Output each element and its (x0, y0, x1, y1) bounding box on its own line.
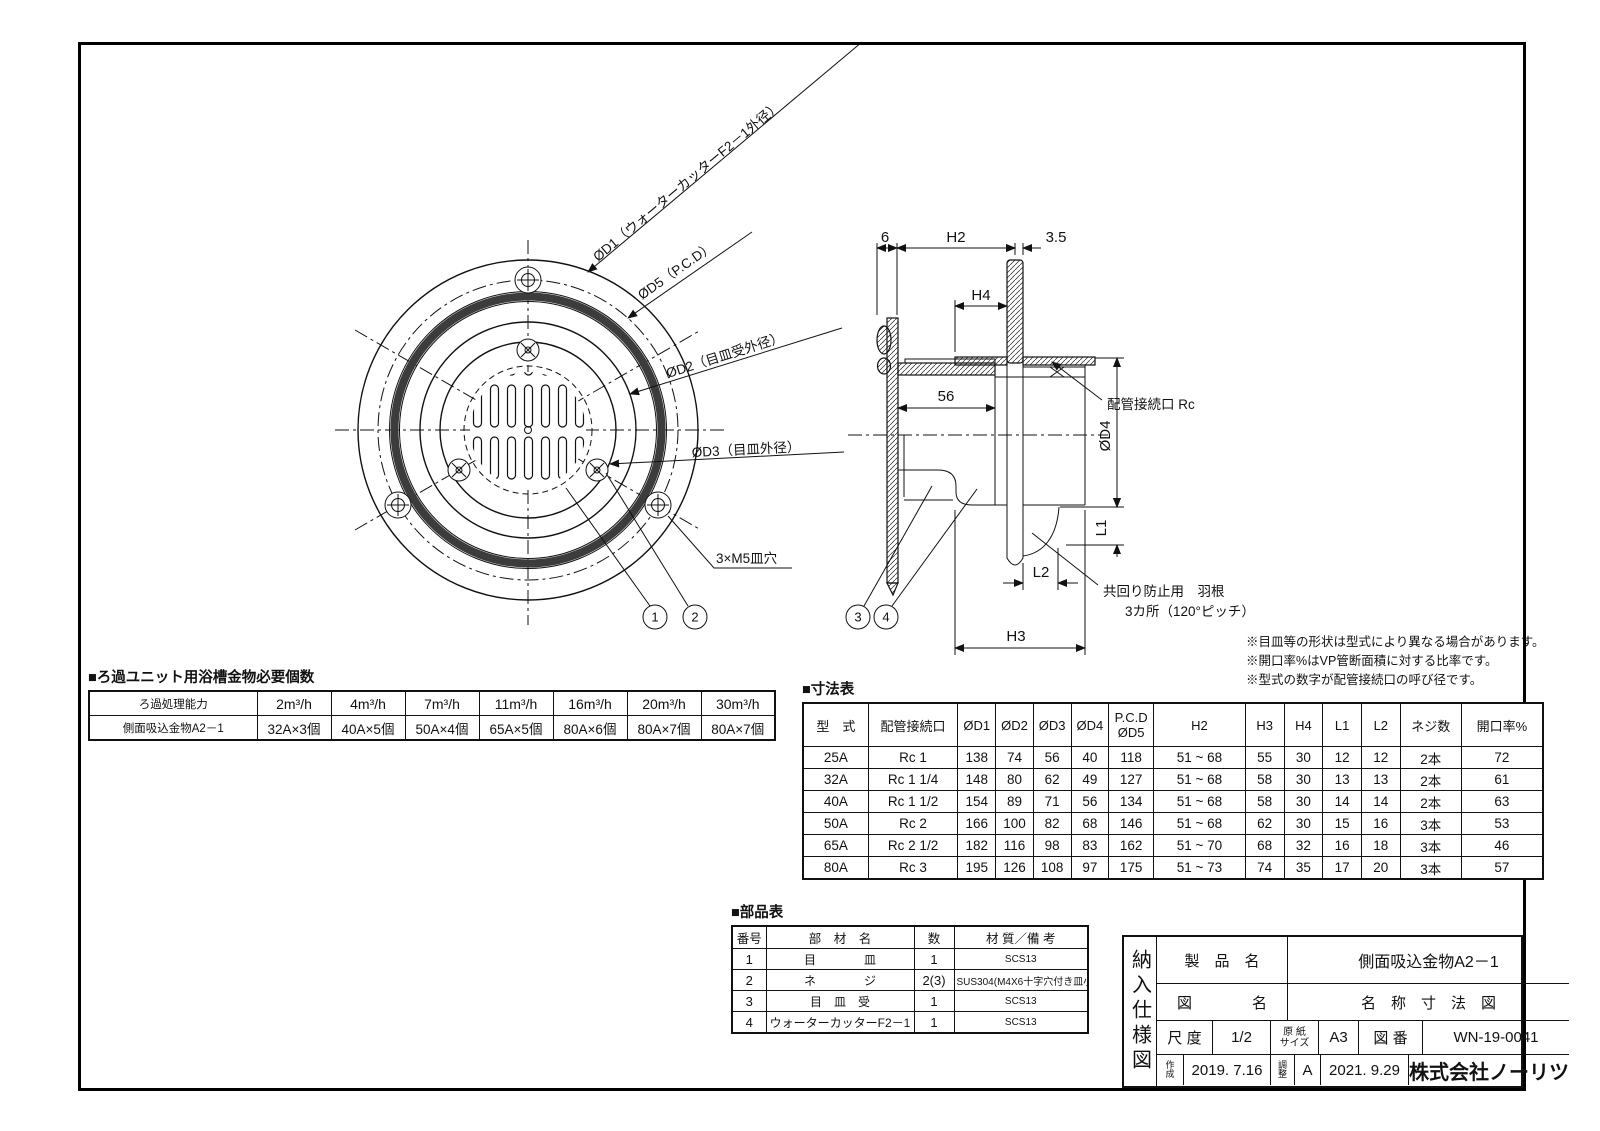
table-cell: 80 (996, 769, 1034, 791)
table-cell: 13 (1361, 769, 1400, 791)
table-cell: 195 (958, 857, 996, 880)
column-header: ØD1 (958, 703, 996, 747)
flange-screw-icon (385, 492, 411, 518)
capacity-table-header: ろ過処理能力2m³/h4m³/h7m³/h11m³/h16m³/h20m³/h3… (89, 691, 775, 716)
thread-chamfer (1050, 367, 1064, 377)
title-block-side-label: 納入仕様図 (1124, 937, 1157, 1086)
column-header: 番号 (732, 926, 766, 949)
drawing-views: ØD1（ウォーターカッターF2－1外径） ØD5（P.C.D） ØD2（目皿受外… (0, 0, 1600, 680)
table-cell: 68 (1071, 813, 1109, 835)
table-row: 2ネ ジ2(3)SUS304(M4X6十字穴付き皿小ネジ) (732, 970, 1088, 991)
column-header: 材 質／備 考 (954, 926, 1088, 949)
table-cell: 51 ~ 68 (1154, 813, 1246, 835)
dimension-table-section: ■寸法表 型 式配管接続口ØD1ØD2ØD3ØD4P.C.DØD5H2H3H4L… (802, 678, 1544, 880)
column-header: ØD2 (996, 703, 1034, 747)
table-cell: 118 (1109, 747, 1154, 769)
table-cell: 80A×7個 (701, 716, 775, 741)
table-cell: 162 (1109, 835, 1154, 857)
column-header: H3 (1245, 703, 1284, 747)
wing-section (1023, 507, 1059, 556)
table-cell: SCS13 (954, 991, 1088, 1012)
table-cell: 1 (914, 1012, 954, 1034)
table-cell: Rc 1 1/2 (868, 791, 958, 813)
table-cell: 51 ~ 73 (1154, 857, 1246, 880)
paper-size-value: A3 (1318, 1021, 1358, 1054)
parts-table-section: ■部品表 番号部 材 名数材 質／備 考 1目 皿1SCS132ネ ジ2(3)S… (731, 901, 1089, 1034)
revised-date: 2021. 9.29 (1320, 1055, 1408, 1085)
table-cell: 63 (1461, 791, 1543, 813)
table-cell: Rc 1 (868, 747, 958, 769)
table-cell: ネ ジ (766, 970, 914, 991)
table-cell: 14 (1361, 791, 1400, 813)
column-header: H2 (1154, 703, 1246, 747)
column-header: 7m³/h (405, 691, 479, 716)
table-cell: Rc 1 1/4 (868, 769, 958, 791)
connector-wall (1023, 367, 1085, 377)
note-line: ※型式の数字が配管接続口の呼び径です。 (1246, 671, 1545, 690)
table-row: 1目 皿1SCS13 (732, 949, 1088, 970)
table-cell: 1 (732, 949, 766, 970)
table-cell: 80A×6個 (553, 716, 627, 741)
water-cutter-plate-lower (1007, 365, 1023, 565)
product-name-value: 側面吸込金物A2－1 (1287, 937, 1569, 983)
table-cell: 3本 (1400, 835, 1461, 857)
column-header: 2m³/h (257, 691, 331, 716)
label-d2: ØD2（目皿受外径） (664, 330, 785, 381)
table-cell: 3 (732, 991, 766, 1012)
table-cell: 35 (1284, 857, 1323, 880)
column-header: 16m³/h (553, 691, 627, 716)
table-cell: 12 (1361, 747, 1400, 769)
table-cell: 57 (1461, 857, 1543, 880)
table-cell: 100 (996, 813, 1034, 835)
table-row: 40ARc 1 1/215489715613451 ~ 68583014142本… (803, 791, 1543, 813)
capacity-table: ろ過処理能力2m³/h4m³/h7m³/h11m³/h16m³/h20m³/h3… (88, 690, 776, 741)
table-cell: 74 (996, 747, 1034, 769)
dim-d4: ØD4 (1097, 421, 1114, 452)
grate-screw-icon (517, 339, 539, 361)
column-header: 開口率% (1461, 703, 1543, 747)
table-cell: 32A (803, 769, 868, 791)
table-cell: 1 (914, 949, 954, 970)
table-cell: SCS13 (954, 949, 1088, 970)
column-header: ろ過処理能力 (89, 691, 257, 716)
note-line: ※開口率%はVP管断面積に対する比率です。 (1246, 652, 1545, 671)
parts-table: 番号部 材 名数材 質／備 考 1目 皿1SCS132ネ ジ2(3)SUS304… (731, 925, 1089, 1034)
table-cell: 58 (1245, 791, 1284, 813)
drawing-name-label: 図 名 (1157, 984, 1287, 1020)
table-cell: 4 (732, 1012, 766, 1034)
table-cell: 目 皿 受 (766, 991, 914, 1012)
table-cell: 56 (1033, 747, 1071, 769)
table-row: 32ARc 1 1/414880624912751 ~ 68583013132本… (803, 769, 1543, 791)
section-callouts: 配管接続口 Rc 共回り防止用 羽根 3カ所（120°ピッチ） 3 4 (846, 362, 1255, 629)
table-cell: 16 (1323, 835, 1362, 857)
table-cell: 目 皿 (766, 949, 914, 970)
table-cell: 65A (803, 835, 868, 857)
table-cell: 83 (1071, 835, 1109, 857)
label-d1: ØD1（ウォーターカッターF2－1外径） (590, 99, 784, 265)
table-cell: 51 ~ 68 (1154, 791, 1246, 813)
column-header: 数 (914, 926, 954, 949)
table-row: 80ARc 31951261089717551 ~ 73743517203本57 (803, 857, 1543, 880)
table-cell: 56 (1071, 791, 1109, 813)
table-cell: 53 (1461, 813, 1543, 835)
dim-56: 56 (938, 388, 955, 405)
table-cell: 68 (1245, 835, 1284, 857)
gasket-section (877, 326, 891, 374)
column-header: 11m³/h (479, 691, 553, 716)
flange-plate-section (887, 318, 898, 583)
table-cell: 16 (1361, 813, 1400, 835)
balloon-4-number: 4 (882, 610, 889, 625)
capacity-table-title: ■ろ過ユニット用浴槽金物必要個数 (88, 666, 776, 687)
label-m5-holes: 3×M5皿穴 (716, 551, 777, 566)
table-row: 4ウォーターカッターF2－11SCS13 (732, 1012, 1088, 1034)
table-row: 3目 皿 受1SCS13 (732, 991, 1088, 1012)
dim-h2: H2 (946, 229, 965, 246)
water-cutter-plate (1007, 260, 1023, 363)
table-cell: Rc 3 (868, 857, 958, 880)
dimension-table: 型 式配管接続口ØD1ØD2ØD3ØD4P.C.DØD5H2H3H4L1L2ネジ… (802, 702, 1544, 880)
table-cell: 89 (996, 791, 1034, 813)
grate-screw-icon (448, 459, 470, 481)
table-cell: 2本 (1400, 791, 1461, 813)
table-cell: 17 (1323, 857, 1362, 880)
table-cell: 58 (1245, 769, 1284, 791)
table-cell: 116 (996, 835, 1034, 857)
flange-screw-icon (515, 267, 541, 293)
column-header: L2 (1361, 703, 1400, 747)
table-row: 25ARc 113874564011851 ~ 68553012122本72 (803, 747, 1543, 769)
drawing-notes: ※目皿等の形状は型式により異なる場合があります。 ※開口率%はVP管断面積に対す… (1246, 633, 1545, 690)
table-cell: 80A×7個 (627, 716, 701, 741)
label-wing-line2: 3カ所（120°ピッチ） (1125, 604, 1255, 619)
scale-label: 尺 度 (1157, 1021, 1212, 1054)
scale-value: 1/2 (1212, 1021, 1270, 1054)
table-cell: 55 (1245, 747, 1284, 769)
created-date: 2019. 7.16 (1183, 1055, 1270, 1085)
table-cell: 30 (1284, 791, 1323, 813)
table-cell: 72 (1461, 747, 1543, 769)
table-cell: SUS304(M4X6十字穴付き皿小ネジ) (954, 970, 1088, 991)
dim-h3: H3 (1006, 628, 1025, 645)
table-cell: 2本 (1400, 747, 1461, 769)
table-cell: 166 (958, 813, 996, 835)
table-cell: 148 (958, 769, 996, 791)
dim-l2: L2 (1033, 564, 1050, 581)
table-cell: ウォーターカッターF2－1 (766, 1012, 914, 1034)
table-cell: 154 (958, 791, 996, 813)
table-cell: 1 (914, 991, 954, 1012)
company-name: 株式会社ノーリツ (1408, 1055, 1569, 1085)
table-cell: 82 (1033, 813, 1071, 835)
table-cell: 20 (1361, 857, 1400, 880)
drawing-number-value: WN-19-0041 (1422, 1021, 1569, 1054)
product-name-label: 製 品 名 (1157, 937, 1287, 983)
table-cell: 134 (1109, 791, 1154, 813)
table-cell: 62 (1033, 769, 1071, 791)
flange-screw-icon (645, 492, 671, 518)
label-d5: ØD5（P.C.D） (635, 239, 717, 302)
column-header: H4 (1284, 703, 1323, 747)
column-header: ØD4 (1071, 703, 1109, 747)
grate-slots (470, 372, 586, 488)
parts-table-header: 番号部 材 名数材 質／備 考 (732, 926, 1088, 949)
column-header: 20m³/h (627, 691, 701, 716)
table-row: 65ARc 2 1/2182116988316251 ~ 70683216183… (803, 835, 1543, 857)
table-cell: 146 (1109, 813, 1154, 835)
table-cell: Rc 2 1/2 (868, 835, 958, 857)
column-header: ネジ数 (1400, 703, 1461, 747)
table-cell: 2本 (1400, 769, 1461, 791)
table-cell: 18 (1361, 835, 1400, 857)
table-cell: 80A (803, 857, 868, 880)
created-label: 作成 (1157, 1055, 1183, 1085)
table-cell: SCS13 (954, 1012, 1088, 1034)
table-cell: 15 (1323, 813, 1362, 835)
label-d3: ØD3（目皿外径） (691, 439, 800, 460)
table-row: 側面吸込金物A2－132A×3個40A×5個50A×4個65A×5個80A×6個… (89, 716, 775, 741)
table-cell: 側面吸込金物A2－1 (89, 716, 257, 741)
title-block: 納入仕様図 製 品 名 側面吸込金物A2－1 図 名 名 称 寸 法 図 尺 度… (1122, 935, 1523, 1088)
label-wing-line1: 共回り防止用 羽根 (1103, 584, 1225, 599)
balloon-2-number: 2 (691, 610, 698, 625)
table-cell: 25A (803, 747, 868, 769)
dimension-table-header: 型 式配管接続口ØD1ØD2ØD3ØD4P.C.DØD5H2H3H4L1L2ネジ… (803, 703, 1543, 747)
front-view: ØD1（ウォーターカッターF2－1外径） ØD5（P.C.D） ØD2（目皿受外… (335, 42, 862, 629)
table-cell: 51 ~ 68 (1154, 769, 1246, 791)
table-cell: 97 (1071, 857, 1109, 880)
table-cell: 30 (1284, 769, 1323, 791)
drawing-name-value: 名 称 寸 法 図 (1287, 984, 1569, 1020)
table-cell: 32 (1284, 835, 1323, 857)
paper-size-label: 原 紙サイズ (1270, 1021, 1318, 1054)
parts-table-title: ■部品表 (731, 901, 1089, 922)
table-cell: 98 (1033, 835, 1071, 857)
table-cell: 62 (1245, 813, 1284, 835)
table-cell: 61 (1461, 769, 1543, 791)
note-line: ※目皿等の形状は型式により異なる場合があります。 (1246, 633, 1545, 652)
revision-letter: A (1294, 1055, 1320, 1085)
table-cell: 2 (732, 970, 766, 991)
table-cell: 71 (1033, 791, 1071, 813)
balloon-3-number: 3 (854, 610, 861, 625)
table-cell: 51 ~ 70 (1154, 835, 1246, 857)
table-cell: 108 (1033, 857, 1071, 880)
table-cell: 175 (1109, 857, 1154, 880)
table-cell: 126 (996, 857, 1034, 880)
table-cell: 14 (1323, 791, 1362, 813)
table-cell: 50A×4個 (405, 716, 479, 741)
table-cell: 3本 (1400, 813, 1461, 835)
section-view: 6 H2 3.5 H4 56 ØD4 L1 L2 H3 (846, 229, 1255, 655)
table-cell: 40A (803, 791, 868, 813)
table-cell: Rc 2 (868, 813, 958, 835)
column-header: 部 材 名 (766, 926, 914, 949)
column-header: 4m³/h (331, 691, 405, 716)
table-cell: 49 (1071, 769, 1109, 791)
column-header: ØD3 (1033, 703, 1071, 747)
table-cell: 127 (1109, 769, 1154, 791)
table-cell: 3本 (1400, 857, 1461, 880)
balloon-1-number: 1 (651, 610, 658, 625)
table-cell: 182 (958, 835, 996, 857)
column-header: 配管接続口 (868, 703, 958, 747)
grate-screw-icon (586, 459, 608, 481)
table-cell: 46 (1461, 835, 1543, 857)
dim-h4: H4 (971, 287, 990, 304)
table-cell: 51 ~ 68 (1154, 747, 1246, 769)
label-rc: 配管接続口 Rc (1107, 396, 1195, 412)
column-header: 30m³/h (701, 691, 775, 716)
table-cell: 40 (1071, 747, 1109, 769)
table-cell: 2(3) (914, 970, 954, 991)
table-cell: 13 (1323, 769, 1362, 791)
table-cell: 138 (958, 747, 996, 769)
capacity-table-section: ■ろ過ユニット用浴槽金物必要個数 ろ過処理能力2m³/h4m³/h7m³/h11… (88, 666, 776, 741)
table-row: 50ARc 2166100826814651 ~ 68623015163本53 (803, 813, 1543, 835)
column-header: 型 式 (803, 703, 868, 747)
table-cell: 50A (803, 813, 868, 835)
dim-6: 6 (881, 229, 889, 246)
dim-3-5: 3.5 (1046, 229, 1067, 246)
table-cell: 30 (1284, 813, 1323, 835)
dim-l1: L1 (1093, 520, 1110, 537)
column-header: P.C.DØD5 (1109, 703, 1154, 747)
drawing-page: { "front_view": { "labels": { "d1": "ØD1… (0, 0, 1600, 1131)
table-cell: 32A×3個 (257, 716, 331, 741)
table-cell: 40A×5個 (331, 716, 405, 741)
column-header: L1 (1323, 703, 1362, 747)
section-dimensions: 6 H2 3.5 H4 56 ØD4 L1 L2 H3 (877, 229, 1124, 655)
table-cell: 12 (1323, 747, 1362, 769)
table-cell: 30 (1284, 747, 1323, 769)
table-cell: 74 (1245, 857, 1284, 880)
revised-label: 調整 (1270, 1055, 1294, 1085)
table-cell: 65A×5個 (479, 716, 553, 741)
drawing-number-label: 図 番 (1358, 1021, 1422, 1054)
